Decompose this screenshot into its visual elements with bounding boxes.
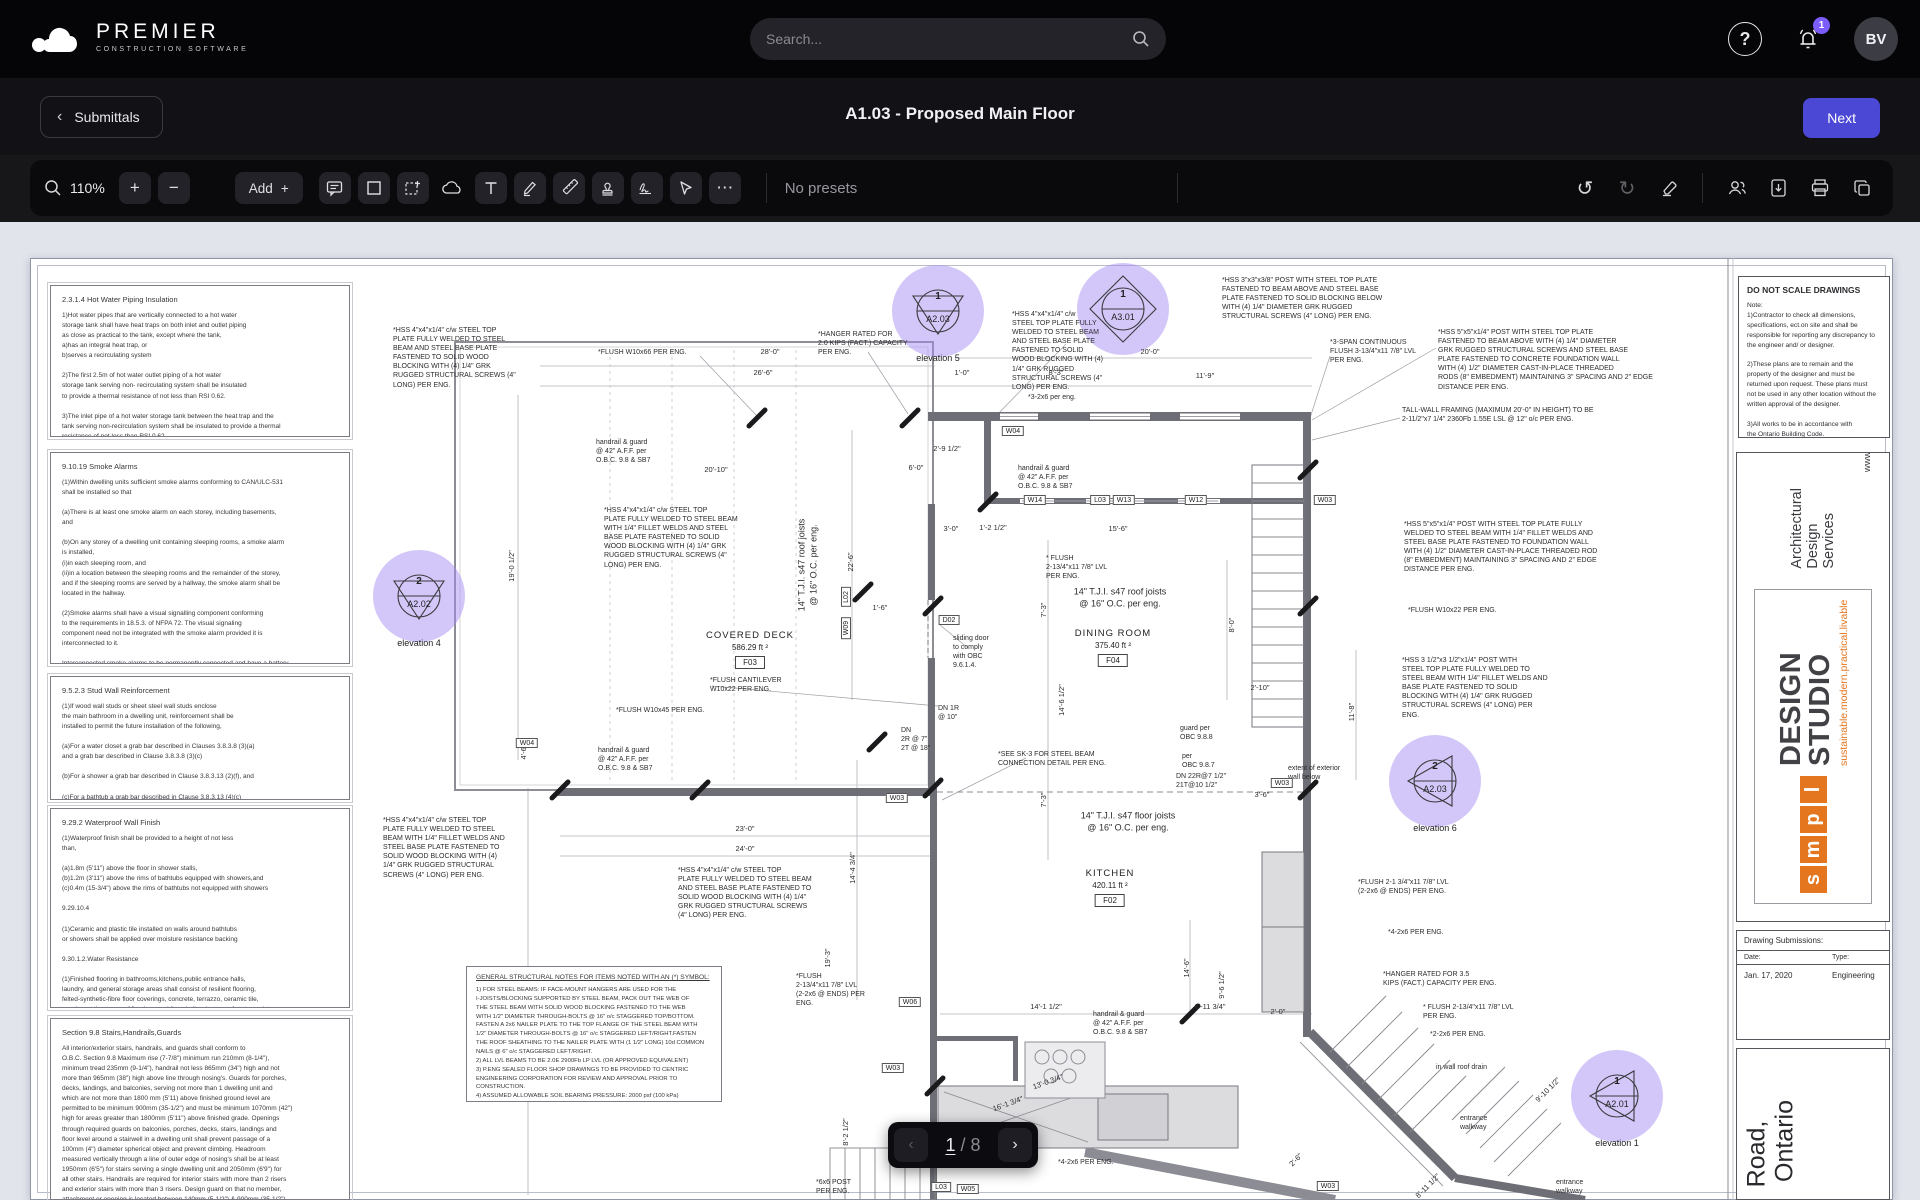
submissions-type-label: Type: (1825, 951, 1856, 964)
search-icon (1132, 30, 1150, 48)
marquee-select-icon (404, 180, 421, 197)
rectangle-tool-button[interactable] (358, 172, 390, 204)
cloud-logo-icon (30, 14, 86, 58)
studio-website: www.smpldesignstudio.com (1862, 452, 1873, 472)
signature-tool-button[interactable] (631, 172, 663, 204)
brand-logo: PREMIER CONSTRUCTION SOFTWARE (30, 14, 248, 58)
zoom-search-icon (44, 179, 62, 197)
notifications-button[interactable]: 1 (1790, 21, 1826, 57)
stamp-icon (599, 180, 616, 197)
eraser-icon (1659, 178, 1679, 198)
global-search[interactable] (750, 18, 1166, 60)
app: PREMIER CONSTRUCTION SOFTWARE ? (0, 0, 1920, 1200)
more-tools-button[interactable]: ⋯ (709, 172, 741, 204)
copy-icon (1853, 179, 1872, 198)
next-button[interactable]: Next (1803, 98, 1880, 138)
eraser-button[interactable] (1652, 171, 1686, 205)
toolbar-divider (766, 173, 767, 203)
document-header: ‹ Submittals A1.03 - Proposed Main Floor… (0, 78, 1920, 155)
do-not-scale-box: DO NOT SCALE DRAWINGS Note: 1)Contractor… (1738, 276, 1890, 438)
redo-button[interactable]: ↻ (1610, 171, 1644, 205)
rectangle-icon (366, 180, 382, 196)
code-note-stud-wall: 9.5.2.3 Stud Wall Reinforcement (1)If wo… (50, 676, 350, 800)
cursor-tool-button[interactable] (670, 172, 702, 204)
code-note-stairs: Section 9.8 Stairs,Handrails,Guards All … (50, 1018, 350, 1200)
top-navigation-bar: PREMIER CONSTRUCTION SOFTWARE ? (0, 0, 1920, 78)
structural-notes-body: 1) FOR STEEL BEAMS: IF FACE-MOUNT HANGER… (476, 986, 712, 1101)
brand-subtitle: CONSTRUCTION SOFTWARE (96, 46, 248, 53)
address-province: Ontario (1771, 1100, 1800, 1182)
zoom-in-button[interactable]: + (119, 172, 151, 204)
presets-selector[interactable]: No presets (785, 180, 858, 197)
cloud-icon (441, 180, 463, 196)
note-body: (1)If wood wall studs or sheet steel wal… (62, 702, 338, 800)
studio-name: DESIGN STUDIO (1777, 600, 1835, 766)
note-body: (1)Waterproof finish shall be provided t… (62, 834, 338, 1008)
submissions-header: Drawing Submissions: (1737, 931, 1889, 951)
ruler-icon (560, 179, 578, 197)
ruler-tool-button[interactable] (553, 172, 585, 204)
drawing-submissions-box: Drawing Submissions: Date: Type: Jan. 17… (1736, 930, 1890, 1040)
annotation-toolbar: 110% + − Add+ (30, 160, 1893, 216)
download-button[interactable] (1761, 171, 1795, 205)
toolbar-divider (1702, 173, 1703, 203)
plus-icon: + (281, 181, 289, 196)
search-input[interactable] (766, 31, 1132, 47)
pen-tool-button[interactable] (514, 172, 546, 204)
studio-services: Architectural Design Services (1789, 488, 1837, 569)
structural-notes-box: GENERAL STRUCTURAL NOTES FOR ITEMS NOTED… (466, 966, 722, 1102)
note-title: Section 9.8 Stairs,Handrails,Guards (62, 1028, 338, 1037)
studio-tagline: sustainable.modern.practical.livable (1838, 600, 1850, 766)
note-title: 9.10.19 Smoke Alarms (62, 462, 338, 471)
code-note-waterproof: 9.29.2 Waterproof Wall Finish (1)Waterpr… (50, 808, 350, 1008)
undo-button[interactable]: ↺ (1568, 171, 1602, 205)
current-page: 1 (945, 1135, 955, 1155)
pen-icon (521, 180, 538, 197)
address-road: Road, (1743, 1121, 1772, 1188)
logo-letter: s (1800, 866, 1827, 893)
project-address-box: Road, Ontario (1736, 1048, 1890, 1200)
printer-icon (1810, 178, 1830, 198)
print-button[interactable] (1803, 171, 1837, 205)
designer-logo-box: s m p l DESIGN STUDIO sustainable.modern… (1736, 452, 1890, 922)
previous-page-button[interactable]: ‹ (894, 1128, 928, 1162)
zoom-out-button[interactable]: − (158, 172, 190, 204)
submission-date: Jan. 17, 2020 (1744, 971, 1832, 980)
note-title: 9.29.2 Waterproof Wall Finish (62, 818, 338, 827)
do-not-scale-title: DO NOT SCALE DRAWINGS (1747, 285, 1881, 295)
do-not-scale-body: Note: 1)Contractor to check all dimensio… (1747, 301, 1881, 438)
logo-letter: p (1800, 806, 1827, 833)
submission-type: Engineering (1832, 971, 1875, 980)
next-page-button[interactable]: › (998, 1128, 1032, 1162)
note-body: 1)Hot water pipes that are vertically co… (62, 311, 338, 437)
note-title: 2.3.1.4 Hot Water Piping Insulation (62, 295, 338, 304)
help-icon[interactable]: ? (1728, 22, 1762, 56)
notification-badge: 1 (1813, 17, 1830, 34)
code-note-hot-water: 2.3.1.4 Hot Water Piping Insulation 1)Ho… (50, 285, 350, 437)
code-note-smoke-alarms: 9.10.19 Smoke Alarms (1)Within dwelling … (50, 452, 350, 664)
note-body: All interior/exterior stairs, handrails,… (62, 1044, 338, 1200)
smpl-logo: s m p l (1800, 776, 1827, 893)
text-icon (483, 180, 499, 196)
zoom-level: 110% (70, 180, 105, 196)
comment-icon (326, 180, 343, 197)
cursor-icon (678, 180, 694, 196)
download-icon (1769, 178, 1788, 198)
duplicate-button[interactable] (1845, 171, 1879, 205)
note-body: (1)Within dwelling units sufficient smok… (62, 478, 338, 664)
page-indicator: 1 / 8 (945, 1135, 980, 1156)
share-users-button[interactable] (1719, 171, 1753, 205)
logo-letter: m (1800, 836, 1827, 863)
note-title: 9.5.2.3 Stud Wall Reinforcement (62, 686, 338, 695)
stamp-tool-button[interactable] (592, 172, 624, 204)
toolbar-divider (1177, 173, 1178, 203)
text-tool-button[interactable] (475, 172, 507, 204)
total-pages: 8 (971, 1135, 981, 1155)
brand-name: PREMIER (96, 20, 248, 44)
page-title: A1.03 - Proposed Main Floor (0, 104, 1920, 124)
submissions-date-label: Date: (1737, 951, 1825, 964)
page-navigation: ‹ 1 / 8 › (888, 1122, 1038, 1168)
signature-icon (637, 180, 657, 196)
area-select-tool-button[interactable] (397, 172, 429, 204)
users-icon (1726, 178, 1747, 198)
avatar[interactable]: BV (1854, 17, 1898, 61)
add-button[interactable]: Add+ (235, 172, 303, 204)
cloud-tool-button[interactable] (436, 172, 468, 204)
logo-letter: l (1800, 776, 1827, 803)
comment-tool-button[interactable] (319, 172, 351, 204)
structural-notes-title: GENERAL STRUCTURAL NOTES FOR ITEMS NOTED… (476, 974, 712, 981)
